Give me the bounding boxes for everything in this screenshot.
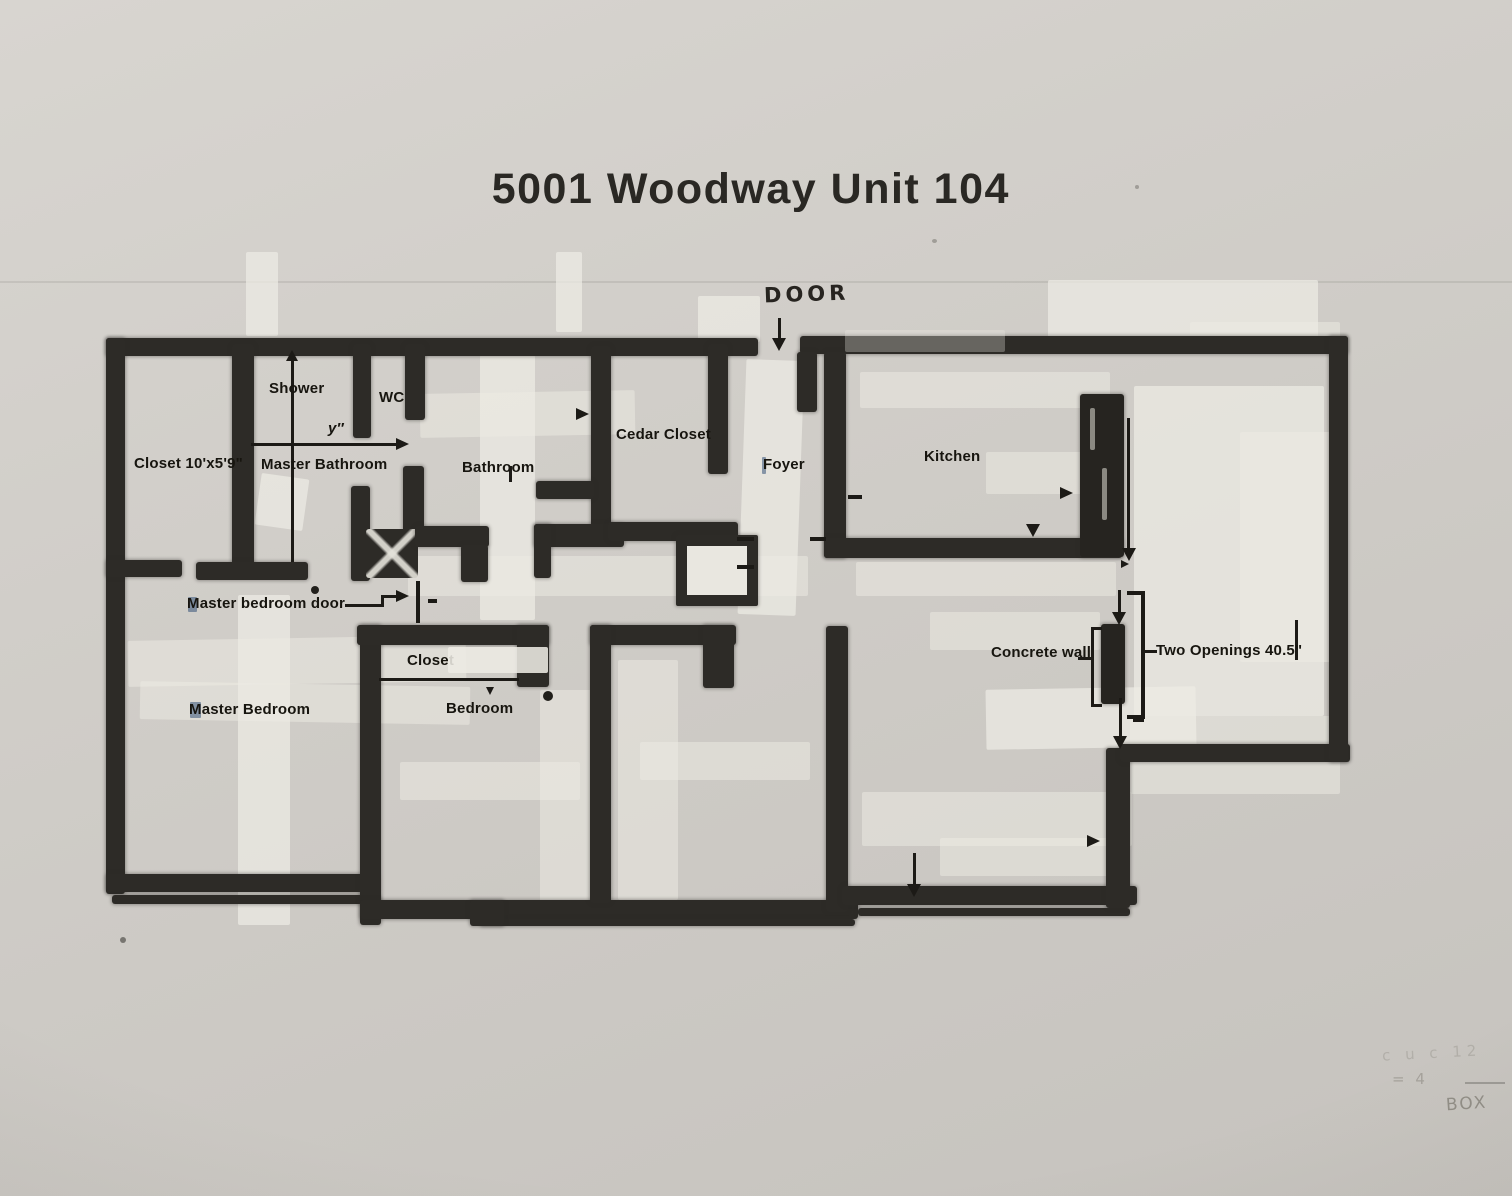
arrow-right-icon [396, 590, 409, 602]
wall-masterbedroom-right [360, 625, 381, 925]
wall-kitchen-bottom [824, 538, 1122, 558]
ink-dot [311, 586, 319, 594]
room-label-bathroom: Bathroom [462, 459, 534, 476]
annotation-concrete-wall: Concrete wall [991, 644, 1091, 661]
door-arrow-line [778, 318, 781, 340]
door-opening-box [676, 535, 758, 606]
dimension-label-y: y″ [328, 420, 344, 437]
wall-bathroom-foot [534, 524, 551, 578]
arrow-right-icon [396, 438, 409, 450]
pencil-note: BOX [1445, 1093, 1488, 1116]
wall-right [1329, 336, 1348, 762]
wall-step-vertical [1106, 748, 1130, 908]
wall-stroke [858, 908, 1130, 916]
tick [848, 495, 862, 499]
wall-shower-wc-stub [353, 344, 371, 438]
pencil-dash [1465, 1082, 1505, 1084]
pencil-note: c u c 12 [1382, 1041, 1482, 1064]
dim-line-3 [1119, 698, 1122, 740]
tape-mark [1240, 432, 1340, 662]
tape-mark [860, 372, 1110, 408]
wall-cedar-right [708, 344, 728, 474]
door-leaf-line [416, 581, 420, 623]
room-label-kitchen: Kitchen [924, 448, 980, 465]
bracket-right [1127, 591, 1145, 719]
room-label-cedar-closet: Cedar Closet [616, 426, 711, 443]
counter-highlight [1102, 468, 1107, 520]
room-label-master-closet: Closet 10'x5'9" [134, 455, 243, 472]
room-label-foyer: Foyer [763, 456, 805, 473]
wall-left-stub [106, 560, 182, 577]
tick [428, 599, 437, 603]
tape-mark [856, 562, 1116, 596]
arrow-right-icon [1060, 487, 1073, 499]
arrow-up-icon [286, 350, 298, 361]
tick [810, 537, 826, 541]
tape-mark [246, 252, 278, 336]
wall-stub [461, 545, 488, 582]
closet-door-line [379, 678, 519, 681]
wall-wc-right-lower [403, 466, 424, 534]
arrow-down-icon [1113, 736, 1127, 749]
shower-pan-symbol [366, 529, 418, 578]
scanned-floor-plan-photo: 5001 Woodway Unit 104 [0, 0, 1512, 1196]
room-label-shower: Shower [269, 380, 324, 397]
arrow-right-icon [1087, 835, 1100, 847]
room-label-master-bedroom: Master Bedroom [189, 701, 310, 718]
annotation-two-openings: Two Openings 40.5" [1156, 642, 1302, 659]
tape-mark [400, 762, 580, 800]
wall-bedroom2-jamb [703, 625, 734, 688]
annotation-master-bedroom-door: Master bedroom door [187, 595, 345, 612]
wall-stroke [480, 919, 855, 926]
arrow-down-icon [907, 884, 921, 897]
wall-wc-right-upper [405, 344, 425, 420]
arrow-right-icon [576, 408, 589, 420]
pencil-note: = 4 [1392, 1070, 1428, 1088]
wall-bottom-bedrooms [360, 900, 858, 919]
wall-top-left [106, 338, 758, 356]
opening-tick [737, 565, 754, 569]
wall-bathroom-right [591, 346, 611, 528]
arrow-down-icon [1026, 524, 1040, 537]
tape-mark [618, 660, 678, 900]
speck [932, 239, 937, 243]
wall-bathroom-jut [536, 481, 594, 499]
speck [1135, 185, 1139, 189]
bracket-left [1091, 627, 1102, 707]
wall-hall-top-bar [415, 526, 489, 547]
opening-tick [737, 537, 754, 541]
concrete-wall-bar [1101, 624, 1125, 704]
tape-mark [845, 330, 1005, 352]
tape-mark [940, 838, 1130, 876]
small-mark [486, 687, 494, 695]
wall-notch [470, 900, 504, 926]
wall-left [106, 338, 125, 894]
handwritten-door-label: DOOR [764, 281, 850, 308]
y-dimension-line [251, 443, 399, 446]
wall-kitchen-left [824, 352, 846, 558]
wall-closet-foot [196, 562, 308, 580]
room-label-master-bathroom: Master Bathroom [261, 456, 387, 473]
flag-mark [1121, 560, 1129, 568]
room-label-bedroom-closet: Closet [407, 652, 454, 669]
wall-bedroom1-right [590, 625, 611, 903]
arrow-down-icon [1112, 612, 1126, 625]
counter-highlight [1090, 408, 1095, 450]
tape-mark [640, 742, 810, 780]
wall-bottom-dining [842, 886, 1137, 905]
tape-mark [255, 473, 310, 531]
page-title: 5001 Woodway Unit 104 [492, 165, 1010, 214]
room-label-bedroom: Bedroom [446, 700, 513, 717]
tape-mark [556, 252, 582, 332]
room-label-wc: WC [379, 389, 404, 406]
wall-right-bottom [1120, 744, 1350, 762]
tick [1133, 718, 1144, 722]
dim-line-1 [1127, 418, 1130, 550]
tape-mark [698, 296, 760, 342]
mbd-line [345, 604, 383, 607]
arrow-down-icon [772, 338, 786, 351]
label-connector [1141, 650, 1157, 653]
wall-bottom-master [106, 874, 378, 892]
wall-stroke [112, 895, 380, 904]
ink-dot [543, 691, 553, 701]
tape-mark-over-closet-label [448, 647, 548, 673]
wall-foyer-jamb [797, 352, 817, 412]
wall-dining-left [826, 626, 848, 912]
ink-dot [120, 937, 126, 943]
